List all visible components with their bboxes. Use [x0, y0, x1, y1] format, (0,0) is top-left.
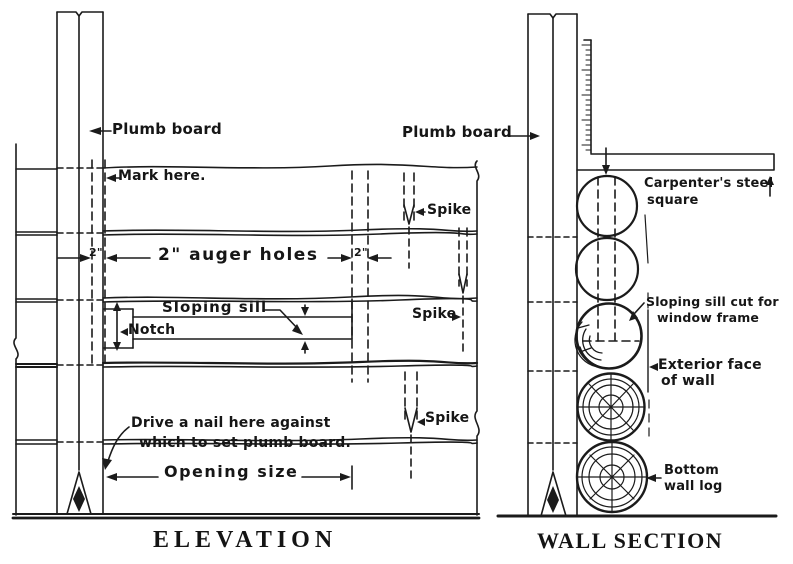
wall-left-edge [14, 144, 18, 515]
label-exterior-line2: of wall [661, 374, 715, 389]
label-exterior-line1: Exterior face [658, 358, 762, 373]
auger-dim-left-arrows [58, 254, 150, 262]
plumb-board-left [57, 12, 103, 514]
plumb-board-right [528, 14, 577, 516]
label-square-line2: square [647, 194, 699, 208]
label-drive-nail-line2: which to set plumb board. [139, 436, 351, 451]
elevation-title: ELEVATION [153, 527, 337, 554]
label-dim-2in-right: 2" [354, 247, 368, 259]
label-sill-cut-line2: window frame [657, 311, 759, 325]
wall-right-edge [475, 161, 479, 515]
label-bottom-log-line1: Bottom [664, 464, 719, 478]
wall-section-title: WALL SECTION [537, 528, 723, 554]
label-dim-2in-left: 2" [89, 247, 103, 259]
label-mark-here: Mark here. [118, 169, 206, 184]
label-sill-cut-line1: Sloping sill cut for [646, 295, 779, 309]
bottom-log-arrow [646, 474, 661, 482]
auger-hole-dashes [92, 160, 368, 382]
plumb-bob-icon [541, 472, 566, 516]
label-spike-middle: Spike [412, 307, 456, 322]
sloping-sill-leader-arrow [263, 305, 309, 353]
drive-nail-leader-arrow [102, 427, 129, 470]
log-cabin-window-diagram: Plumb board Mark here. 2" 2" auger holes… [0, 0, 793, 564]
spike-bottom-dashes [405, 372, 417, 480]
label-auger-holes: 2" auger holes [158, 246, 318, 265]
plumb-board-label-arrow [508, 132, 540, 140]
exterior-face-arrow [649, 363, 658, 371]
label-plumb-board-right: Plumb board [402, 124, 512, 141]
label-spike-bottom: Spike [425, 411, 469, 426]
wall-section-view [498, 14, 776, 516]
label-spike-top: Spike [427, 203, 471, 218]
label-square-line1: Carpenter's steel [644, 177, 773, 191]
log-growth-rings [578, 374, 646, 511]
spike-top-dashes [404, 173, 414, 268]
square-pointer-arrow [602, 148, 610, 175]
plumb-board-label-arrow [89, 127, 111, 135]
label-bottom-log-line2: wall log [664, 480, 723, 494]
spike-bottom-label-arrow [417, 418, 425, 426]
sill-log-grain [575, 322, 614, 368]
label-drive-nail-line1: Drive a nail here against [131, 416, 330, 431]
label-opening-size: Opening size [164, 463, 298, 481]
label-sloping-sill: Sloping sill [162, 299, 267, 316]
plumb-bob-icon [67, 472, 91, 514]
spike-middle-dashes [459, 228, 467, 355]
label-notch: Notch [128, 323, 175, 338]
spike-top-label-arrow [415, 208, 425, 216]
label-plumb-board-left: Plumb board [112, 121, 222, 138]
